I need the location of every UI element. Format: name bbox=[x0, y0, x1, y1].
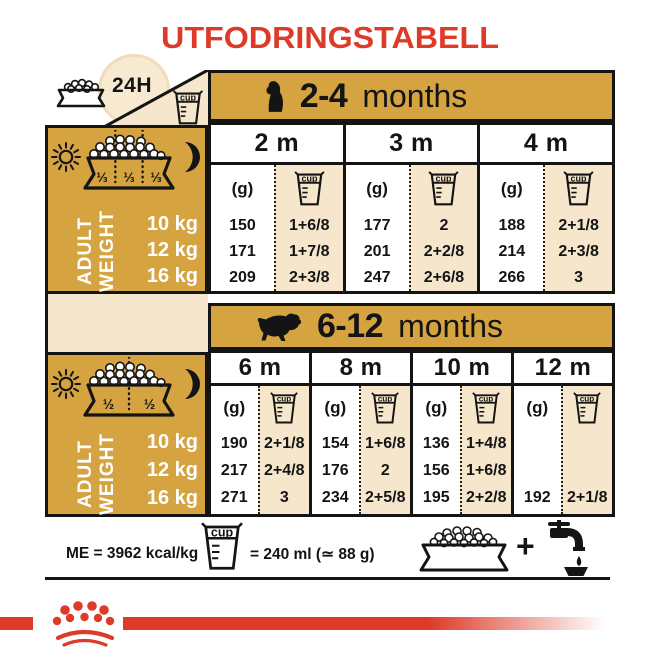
grams-subcolumn: (g) 188 214 266 bbox=[480, 165, 543, 291]
feeding-table-2-4-months: 2 m (g) 150 171 209 cup bbox=[208, 122, 615, 294]
grams-label: (g) bbox=[223, 386, 245, 430]
cup-icon: cup bbox=[428, 171, 459, 207]
cups-value: 2+1/8 bbox=[264, 430, 304, 457]
cups-value: 1+6/8 bbox=[466, 457, 506, 484]
kibble bbox=[90, 362, 165, 386]
water-tap-icon bbox=[540, 520, 588, 578]
cups-value: 2+3/8 bbox=[558, 239, 598, 265]
grams-value: 171 bbox=[229, 239, 256, 265]
grams-value: 209 bbox=[229, 265, 256, 291]
cups-subcolumn: cup 1+6/8 1+7/8 2+3/8 bbox=[274, 165, 343, 291]
moon-icon bbox=[185, 142, 200, 172]
metabolizable-energy: ME = 3962 kcal/kg bbox=[66, 545, 198, 563]
svg-text:½: ½ bbox=[144, 397, 155, 412]
food-bowl-icon-large bbox=[417, 526, 511, 572]
feeding-table-page: UTFODRINGSTABELL 24H cup 2-4 months bbox=[0, 0, 660, 660]
grams-value: 214 bbox=[498, 239, 525, 265]
weight-16kg: 16 kg bbox=[48, 265, 198, 288]
month-header: 8 m bbox=[312, 353, 410, 386]
cups-value: 1+4/8 bbox=[466, 430, 506, 457]
cups-value: 2+2/8 bbox=[424, 239, 464, 265]
grams-value: 271 bbox=[221, 484, 248, 511]
cups-subcolumn: cup 2+1/8 2+4/8 3 bbox=[258, 386, 309, 514]
cup-icon: cup bbox=[270, 392, 298, 425]
grams-subcolumn: (g) 190 217 271 bbox=[211, 386, 258, 514]
grams-value: 176 bbox=[322, 457, 349, 484]
age-range: 6-12 bbox=[317, 307, 383, 346]
month-header: 6 m bbox=[211, 353, 309, 386]
cups-value: 2 bbox=[440, 213, 449, 239]
svg-text:⅓: ⅓ bbox=[150, 170, 161, 185]
grams-subcolumn: (g) 154 176 234 bbox=[312, 386, 359, 514]
cup-icon: cup bbox=[172, 90, 204, 126]
daily-ration-halves-icon: ½ ½ bbox=[48, 357, 205, 429]
food-bowl-icon bbox=[54, 77, 108, 109]
grams-label: (g) bbox=[366, 165, 388, 213]
grams-label: (g) bbox=[526, 386, 548, 430]
cup-icon: cup bbox=[573, 392, 601, 425]
cup-equivalence: = 240 ml (≃ 88 g) bbox=[250, 545, 375, 564]
dog-running-icon bbox=[256, 311, 304, 342]
feeding-table-6-12-months: 6 m (g) 190 217 271 cup bbox=[208, 350, 615, 517]
svg-text:½: ½ bbox=[103, 397, 114, 412]
month-header: 4 m bbox=[480, 125, 612, 165]
sun-icon bbox=[52, 143, 80, 171]
age-band-6-12-months: 6-12 months bbox=[208, 303, 615, 350]
grams-value: 136 bbox=[423, 430, 450, 457]
svg-text:cup: cup bbox=[277, 394, 292, 403]
cup-icon: cup bbox=[472, 392, 500, 425]
cups-value: 2 bbox=[381, 457, 390, 484]
cup-icon: cup bbox=[294, 171, 325, 207]
grams-value: 156 bbox=[423, 457, 450, 484]
weight-12kg: 12 kg bbox=[48, 459, 198, 482]
cups-value: 3 bbox=[280, 484, 289, 511]
svg-text:cup: cup bbox=[211, 525, 234, 539]
cups-value: 2+3/8 bbox=[289, 265, 329, 291]
weight-12kg: 12 kg bbox=[48, 239, 198, 262]
brand-stripe-left bbox=[0, 617, 33, 630]
cups-subcolumn: cup 2+1/8 2+3/8 3 bbox=[543, 165, 612, 291]
grams-subcolumn: (g) 136 156 195 bbox=[413, 386, 460, 514]
grams-value: 192 bbox=[524, 484, 551, 511]
cups-subcolumn: cup 1+6/8 2 2+5/8 bbox=[359, 386, 410, 514]
grams-value: 188 bbox=[498, 213, 525, 239]
footer-divider bbox=[45, 577, 610, 580]
cup-icon-large: cup bbox=[200, 522, 244, 572]
svg-text:cup: cup bbox=[301, 173, 318, 183]
grams-subcolumn: (g) 150 171 209 bbox=[211, 165, 274, 291]
daily-ration-thirds-icon: ⅓ ⅓ ⅓ bbox=[48, 130, 205, 202]
grams-value: 177 bbox=[364, 213, 391, 239]
svg-text:⅓: ⅓ bbox=[123, 170, 134, 185]
grams-label: (g) bbox=[501, 165, 523, 213]
grams-value: 195 bbox=[423, 484, 450, 511]
svg-text:cup: cup bbox=[180, 92, 197, 102]
cups-value: 1+6/8 bbox=[289, 213, 329, 239]
weight-10kg: 10 kg bbox=[48, 213, 198, 236]
cup-icon: cup bbox=[371, 392, 399, 425]
svg-text:cup: cup bbox=[571, 173, 588, 183]
month-column-2m: 2 m (g) 150 171 209 cup bbox=[211, 125, 346, 291]
grams-subcolumn: (g) 177 201 247 bbox=[346, 165, 409, 291]
month-column-10m: 10 m (g) 136 156 195 cup bbox=[413, 353, 514, 514]
royal-canin-crown-logo bbox=[40, 598, 122, 650]
grams-value: 247 bbox=[364, 265, 391, 291]
cups-value: 3 bbox=[574, 265, 583, 291]
grams-value: 217 bbox=[221, 457, 248, 484]
cups-value: 1+6/8 bbox=[365, 430, 405, 457]
cup-icon: cup bbox=[563, 171, 594, 207]
grams-label: (g) bbox=[324, 386, 346, 430]
puppy-sitting-icon bbox=[264, 80, 287, 113]
cups-value: 2+4/8 bbox=[264, 457, 304, 484]
month-header: 12 m bbox=[514, 353, 612, 386]
month-column-4m: 4 m (g) 188 214 266 cup bbox=[480, 125, 612, 291]
svg-text:cup: cup bbox=[436, 173, 453, 183]
grams-value: 150 bbox=[229, 213, 256, 239]
cups-subcolumn: cup 1+4/8 1+6/8 2+2/8 bbox=[460, 386, 511, 514]
grams-subcolumn: (g) 192 bbox=[514, 386, 561, 514]
left-spacer bbox=[45, 294, 208, 352]
month-column-8m: 8 m (g) 154 176 234 cup bbox=[312, 353, 413, 514]
plus-sign: + bbox=[516, 531, 535, 561]
brand-stripe-right bbox=[123, 617, 615, 630]
cups-value: 2+6/8 bbox=[424, 265, 464, 291]
grams-value: 201 bbox=[364, 239, 391, 265]
svg-text:⅓: ⅓ bbox=[96, 170, 107, 185]
month-header: 3 m bbox=[346, 125, 478, 165]
cups-value: 2+1/8 bbox=[558, 213, 598, 239]
grams-label: (g) bbox=[232, 165, 254, 213]
grams-value: 234 bbox=[322, 484, 349, 511]
page-title: UTFODRINGSTABELL bbox=[0, 20, 660, 56]
cups-subcolumn: cup 2 2+2/8 2+6/8 bbox=[409, 165, 478, 291]
weight-16kg: 16 kg bbox=[48, 487, 198, 510]
month-column-3m: 3 m (g) 177 201 247 cup bbox=[346, 125, 481, 291]
cups-value: 1+7/8 bbox=[289, 239, 329, 265]
moon-icon bbox=[185, 369, 200, 399]
grams-value: 266 bbox=[498, 265, 525, 291]
grams-label: (g) bbox=[425, 386, 447, 430]
month-header: 10 m bbox=[413, 353, 511, 386]
month-column-6m: 6 m (g) 190 217 271 cup bbox=[211, 353, 312, 514]
cups-value: 2+5/8 bbox=[365, 484, 405, 511]
month-column-12m: 12 m (g) 192 cup bbox=[514, 353, 612, 514]
ration-panel-6-12: ½ ½ ADULT WEIGHT 10 kg 12 kg 16 kg bbox=[45, 352, 208, 517]
weight-10kg: 10 kg bbox=[48, 431, 198, 454]
age-range-unit: months bbox=[398, 308, 503, 345]
grams-value: 190 bbox=[221, 430, 248, 457]
cups-value: 2+2/8 bbox=[466, 484, 506, 511]
cups-value: 2+1/8 bbox=[567, 484, 607, 511]
svg-text:cup: cup bbox=[479, 394, 494, 403]
svg-text:cup: cup bbox=[580, 394, 595, 403]
age-range-unit: months bbox=[362, 78, 467, 115]
svg-text:cup: cup bbox=[378, 394, 393, 403]
age-range: 2-4 bbox=[300, 77, 348, 116]
month-header: 2 m bbox=[211, 125, 343, 165]
grams-value: 154 bbox=[322, 430, 349, 457]
kibble bbox=[90, 135, 165, 159]
cups-subcolumn: cup 2+1/8 bbox=[561, 386, 612, 514]
ration-panel-2-4: ⅓ ⅓ ⅓ ADULT WEIGHT 10 kg 12 kg 16 kg bbox=[45, 125, 208, 294]
age-band-2-4-months: 2-4 months bbox=[208, 70, 615, 122]
sun-icon bbox=[52, 370, 80, 398]
